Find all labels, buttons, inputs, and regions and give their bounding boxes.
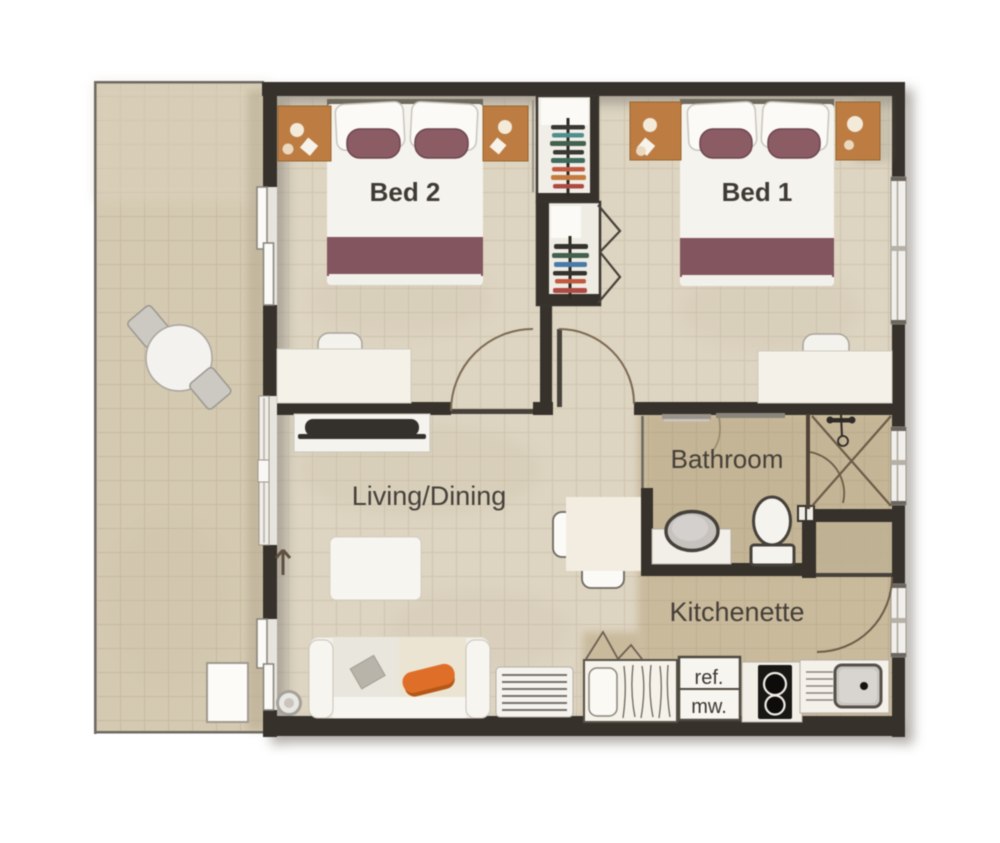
svg-text:mw.: mw. <box>691 696 727 718</box>
svg-text:Bathroom: Bathroom <box>671 444 784 474</box>
svg-text:Bed 1: Bed 1 <box>722 177 793 207</box>
svg-text:Bed 2: Bed 2 <box>370 177 441 207</box>
svg-text:Kitchenette: Kitchenette <box>669 597 804 627</box>
svg-text:Living/Dining: Living/Dining <box>352 481 507 511</box>
svg-text:ref.: ref. <box>695 667 724 689</box>
